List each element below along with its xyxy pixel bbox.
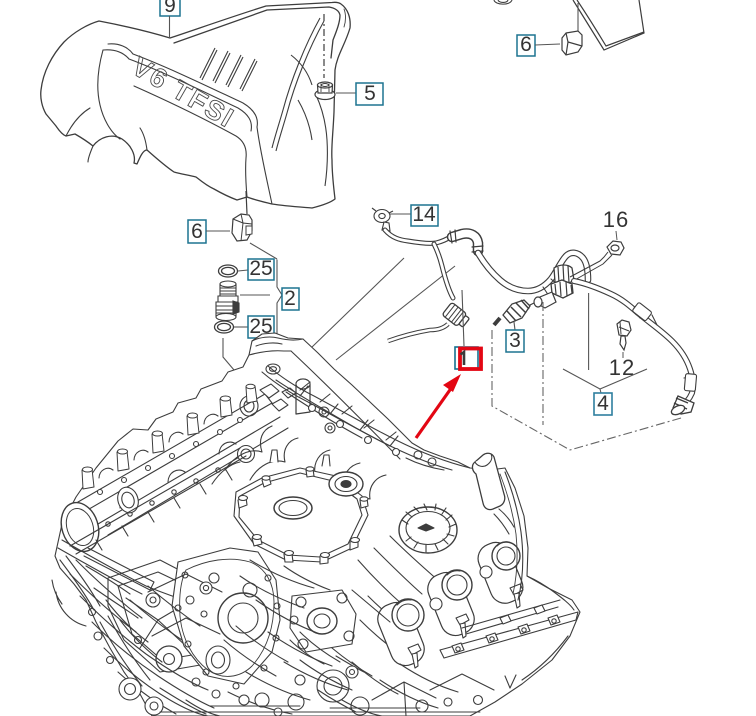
svg-text:9: 9 — [164, 0, 176, 17]
svg-text:5: 5 — [364, 82, 376, 105]
svg-text:6: 6 — [191, 220, 203, 243]
svg-text:16: 16 — [603, 207, 629, 232]
svg-text:3: 3 — [509, 329, 521, 352]
svg-text:6: 6 — [520, 33, 532, 56]
svg-text:2: 2 — [284, 287, 296, 310]
svg-text:25: 25 — [249, 257, 272, 280]
svg-text:4: 4 — [597, 392, 609, 415]
svg-text:14: 14 — [412, 203, 436, 226]
